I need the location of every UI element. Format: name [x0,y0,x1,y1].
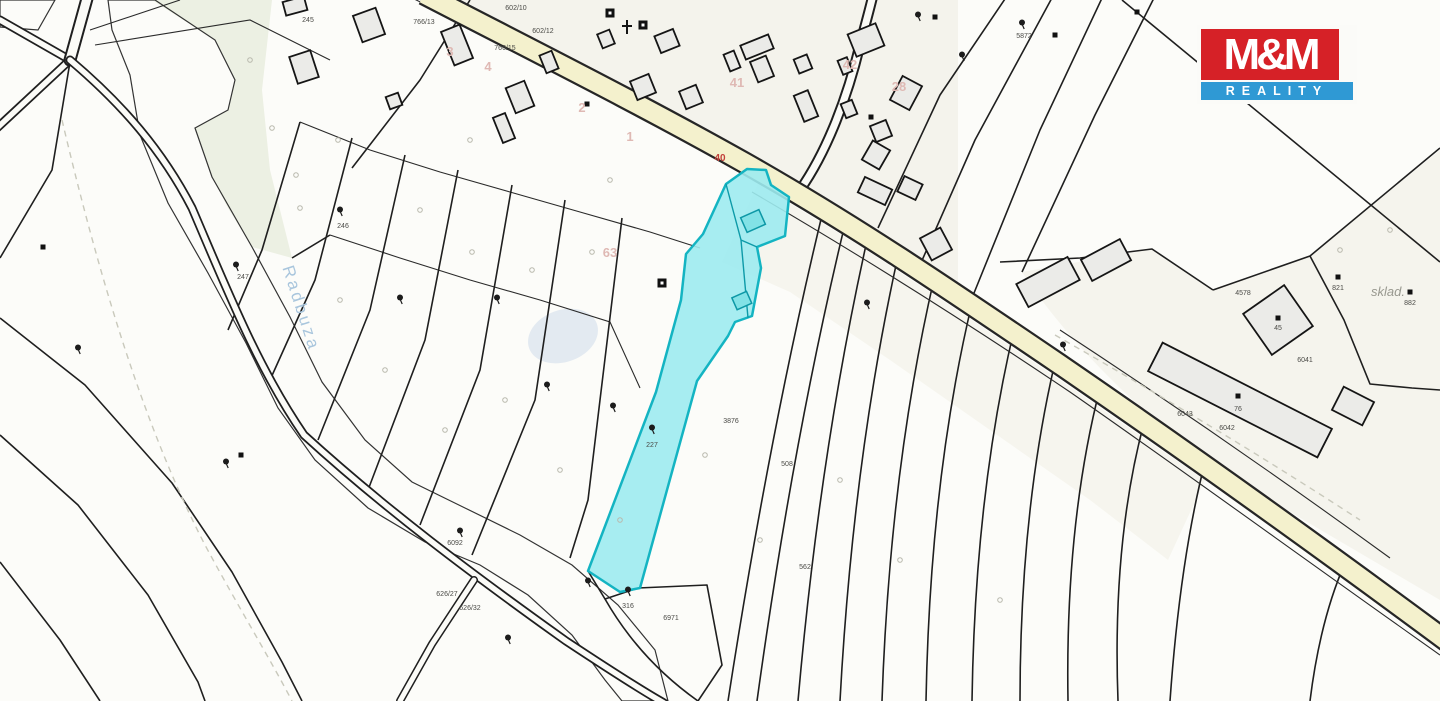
mm-reality-logo: M&M REALITY [1197,25,1357,104]
parcel-number: 882 [1404,300,1416,307]
map-screenshot: Radbuza sklad. 602/10602/12766/13766/155… [0,0,1440,701]
logo-mm-text: M&M [1223,33,1316,77]
house-number: 40 [714,153,726,164]
parcel-number: 766/13 [413,19,435,26]
parcel-number: 316 [622,603,634,610]
parcel-number: 246 [337,223,349,230]
warehouse-label: sklad. [1371,284,1405,299]
parcel-number: 6042 [1219,425,1235,432]
house-number: 4 [484,59,492,74]
parcel-number: 602/10 [505,5,527,12]
logo-mm-box: M&M [1201,29,1339,80]
house-number: 63 [603,245,617,260]
parcel-number: 6043 [1177,411,1193,418]
parcel-number: 245 [302,17,314,24]
parcel-number: 3876 [723,418,739,425]
parcel-number: 821 [1332,285,1344,292]
logo-reality-bar: REALITY [1201,82,1353,100]
map-canvas[interactable]: Radbuza sklad. 602/10602/12766/13766/155… [0,0,1440,701]
parcel-number: 227 [646,442,658,449]
parcel-number: 6971 [663,615,679,622]
survey-marker-icon [869,115,874,120]
parcel-number: 4578 [1235,290,1251,297]
parcel-number: 508 [781,461,793,468]
parcel-number: 76 [1234,406,1242,413]
survey-marker-icon [606,9,615,18]
parcel-number: 602/12 [532,28,554,35]
survey-marker-icon [1408,290,1413,295]
parcel-number: 626/32 [459,605,481,612]
survey-marker-icon [41,245,46,250]
survey-marker-icon [1336,275,1341,280]
survey-marker-icon [639,21,648,30]
house-number: 41 [730,75,744,90]
house-number: 42 [843,57,857,72]
parcel-number: 562 [799,564,811,571]
survey-marker-icon [1135,10,1140,15]
house-number: 3 [446,44,453,59]
survey-marker-icon [1053,33,1058,38]
survey-marker-icon [658,279,667,288]
parcel-number: 6041 [1297,357,1313,364]
logo-reality-text: REALITY [1226,85,1328,98]
parcel-number: 45 [1274,325,1282,332]
house-number: 1 [626,129,633,144]
survey-marker-icon [239,453,244,458]
house-number: 28 [892,79,906,94]
survey-marker-icon [933,15,938,20]
survey-marker-icon [1236,394,1241,399]
survey-marker-icon [1276,316,1281,321]
house-number: 2 [578,100,585,115]
parcel-number: 247 [237,274,249,281]
parcel-number: 5872 [1016,33,1032,40]
parcel-number: 766/15 [494,45,516,52]
parcel-number: 626/27 [436,591,458,598]
parcel-number: 6092 [447,540,463,547]
